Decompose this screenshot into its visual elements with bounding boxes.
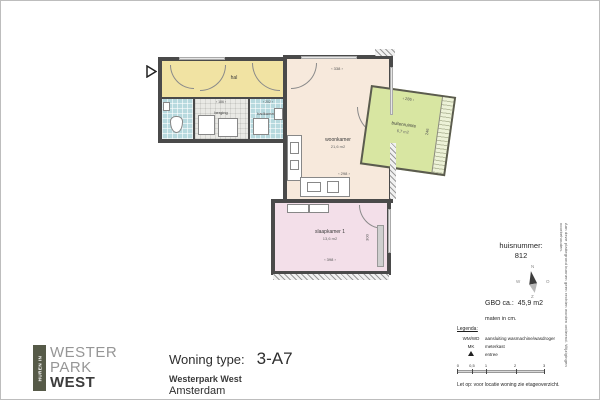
scalebar-tick-label: 0 xyxy=(457,363,459,368)
westerpark-west-logo: HUREN IN WESTER PARK WEST xyxy=(33,345,117,391)
huisnummer-value: 812 xyxy=(489,251,553,261)
legenda-desc-mk: meterkast xyxy=(485,343,505,351)
dim-slaapkamer1-right: 300 xyxy=(365,230,370,246)
legenda-key-wmwd: WM/WD xyxy=(457,335,485,343)
cooktop xyxy=(307,182,321,192)
balcony-railing xyxy=(431,97,453,174)
hatched-wall xyxy=(375,49,395,56)
legenda-desc-entree: entree xyxy=(485,351,498,359)
room-buitenruimte: 286 buitenruimte 6,7 m2 246 xyxy=(360,85,456,176)
scalebar-tick-label: 1 xyxy=(485,363,487,368)
window xyxy=(390,67,393,115)
room-label-slaapkamer1: slaapkamer 1 xyxy=(295,229,365,235)
woning-type-row: Woning type: 3-A7 xyxy=(169,349,293,369)
room-label-hal: hal xyxy=(214,75,254,81)
compass-needle xyxy=(521,269,545,296)
logo-vertical-text: HUREN IN xyxy=(37,355,42,381)
city-name: Amsterdam xyxy=(169,385,293,397)
room-toilet xyxy=(162,99,193,139)
logo-line1: WESTER xyxy=(50,345,117,360)
compass-w: W xyxy=(516,279,520,284)
kitchen-block xyxy=(300,177,350,197)
hatched-wall xyxy=(390,143,396,199)
scalebar-tick-label: 3 xyxy=(543,363,545,368)
scalebar-tick xyxy=(516,369,517,374)
entree-arrow-icon xyxy=(146,65,157,78)
kitchen-sink xyxy=(290,142,299,154)
scalebar-tick xyxy=(472,369,473,374)
logo-line3: WEST xyxy=(50,375,117,390)
kitchen-appliance xyxy=(327,181,339,193)
disclaimer-vertical: Aan deze plattegrond kunnen geen rechten… xyxy=(559,223,569,373)
scalebar-tick xyxy=(486,369,487,374)
door-arc xyxy=(170,65,194,89)
radiator xyxy=(377,225,384,267)
huisnummer-block: huisnummer: 812 xyxy=(489,241,553,261)
window xyxy=(388,209,391,253)
dim-woonkamer-bottom: 298 xyxy=(319,171,369,176)
title-block: Woning type: 3-A7 Westerpark West Amster… xyxy=(169,349,293,397)
entree-triangle-icon xyxy=(468,351,474,356)
floorplan-sheet: hal 186 berging 202 badkamer xyxy=(0,0,600,400)
legenda-key-entree xyxy=(457,351,485,359)
kitchen-unit xyxy=(290,160,299,170)
gbo-value: 45,9 m2 xyxy=(518,300,543,307)
gbo-label: GBO ca.: xyxy=(485,300,514,307)
scalebar-tick xyxy=(457,369,458,374)
room-badkamer: 202 badkamer xyxy=(250,99,287,139)
dim-woonkamer-top: 338 xyxy=(307,66,367,71)
window xyxy=(301,56,357,59)
compass-n: N xyxy=(531,264,534,269)
scalebar-bar xyxy=(457,370,545,373)
area-slaapkamer1: 13,6 m2 xyxy=(295,236,365,241)
scalebar-tick-label: 2 xyxy=(514,363,516,368)
wc-fixture xyxy=(170,116,183,133)
shower-fixture xyxy=(253,118,269,135)
gbo-line: GBO ca.: 45,9 m2 xyxy=(485,300,543,307)
dim-berging-top: 186 xyxy=(201,100,241,105)
hatched-wall xyxy=(273,274,389,280)
scalebar-tick xyxy=(544,369,545,374)
door-arc xyxy=(252,63,280,91)
kitchen-counter xyxy=(287,135,302,181)
scalebar: 0 0,5 1 2 3 xyxy=(457,363,545,377)
floor-plan: hal 186 berging 202 badkamer xyxy=(1,1,600,331)
wardrobe xyxy=(287,204,309,213)
sink-fixture xyxy=(163,102,170,111)
washer-fixture xyxy=(198,115,215,135)
scalebar-tick-label: 0,5 xyxy=(469,363,475,368)
maten-note: maten in cm. xyxy=(485,316,516,322)
legenda-key-mk: MK xyxy=(457,343,485,351)
dim-badkamer-top: 202 xyxy=(252,100,284,105)
compass: N O Z W xyxy=(515,265,551,301)
logo-line2: PARK xyxy=(50,360,117,375)
let-op-note: Let op: voor locatie woning zie etageove… xyxy=(457,382,572,388)
huisnummer-label: huisnummer: xyxy=(489,241,553,251)
woning-type-value: 3-A7 xyxy=(257,349,293,369)
window xyxy=(179,57,225,60)
wardrobe xyxy=(309,204,329,213)
dryer-fixture xyxy=(218,118,238,137)
project-name: Westerpark West xyxy=(169,374,293,384)
dim-slaapkamer1-bottom: 398 xyxy=(300,257,360,262)
basin-fixture xyxy=(274,108,283,120)
logo-bar: HUREN IN xyxy=(33,345,46,391)
legenda-desc-wmwd: aansluiting wasmachine/wasdroger xyxy=(485,335,555,343)
room-slaapkamer1: slaapkamer 1 13,6 m2 398 300 xyxy=(271,199,391,275)
compass-o: O xyxy=(546,279,550,284)
woning-type-label: Woning type: xyxy=(169,352,245,367)
logo-text: WESTER PARK WEST xyxy=(50,345,117,391)
needle-south xyxy=(529,283,538,293)
wing-hal-block: hal 186 berging 202 badkamer xyxy=(158,57,291,143)
room-berging: 186 berging xyxy=(195,99,248,139)
